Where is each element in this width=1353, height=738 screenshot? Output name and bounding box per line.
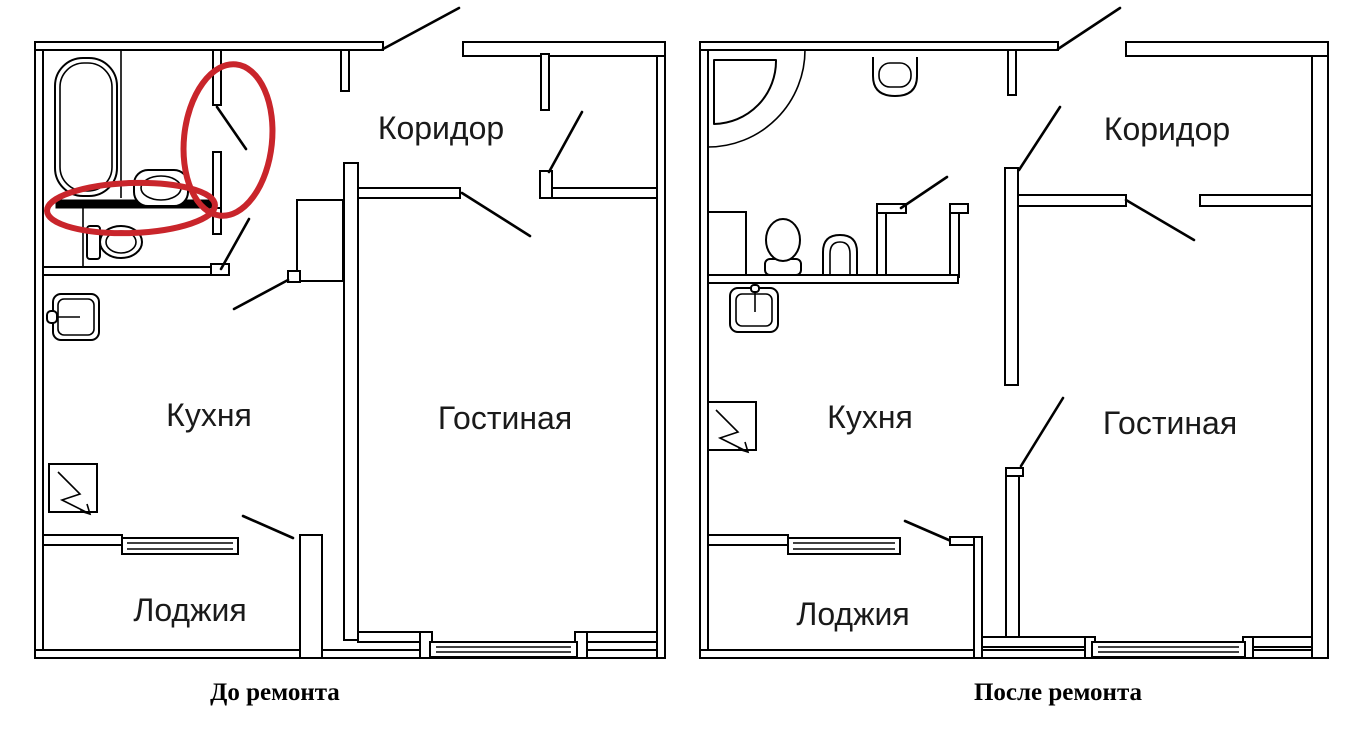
central-wall [1005, 168, 1018, 385]
bathroom-door-swing [901, 177, 947, 208]
balcony-door-swing [243, 516, 293, 538]
wall [35, 42, 383, 50]
living-room-top-wall [540, 171, 552, 198]
wc-bottom-wall [43, 267, 211, 275]
wc-door-swing [221, 219, 249, 269]
kitchen-sink-icon [47, 294, 99, 340]
kitchen-door-swing [234, 280, 288, 309]
corridor-door-swing [549, 112, 582, 172]
caption-after: После ремонта [974, 679, 1143, 706]
central-wall-notch [1006, 468, 1023, 476]
duct-niche [708, 212, 746, 277]
room-label-kitchen: Кухня [166, 397, 252, 433]
wall-stub [1008, 50, 1016, 95]
living-kitchen-door-swing [1021, 398, 1063, 466]
living-room-wall [344, 163, 358, 640]
caption-before: До ремонта [210, 679, 340, 706]
bathroom-bottom-wall [708, 275, 958, 283]
room-label-living: Гостиная [438, 400, 572, 436]
wall [700, 42, 1058, 50]
living-room-top-wall [358, 188, 460, 198]
passage-wall [950, 204, 968, 213]
floorplan-comparison: Коридор Кухня Гостиная Лоджия [0, 0, 1353, 738]
wall [35, 42, 43, 658]
bidet-icon [823, 235, 857, 275]
vent-shaft-box [297, 200, 343, 281]
wall [700, 42, 708, 658]
kitchen-sink-icon [730, 285, 778, 332]
electric-stove-icon [49, 464, 97, 514]
corner-shower-icon [708, 50, 805, 147]
electric-stove-icon [708, 402, 756, 452]
kitchen-bottom-wall [708, 535, 788, 545]
living-room-door-swing [1126, 200, 1194, 240]
kitchen-window [122, 538, 238, 554]
entrance-door-swing [383, 8, 459, 49]
bathroom-door-highlight [176, 60, 279, 220]
bathroom-partition [56, 200, 214, 208]
central-wall [1006, 468, 1019, 637]
wall [463, 42, 665, 56]
kitchen-bottom-wall [43, 535, 122, 545]
bathroom-door-swing [217, 107, 246, 149]
kitchen-window [788, 538, 900, 554]
living-room-bottom-wall [1245, 637, 1312, 647]
toilet-icon [765, 219, 801, 275]
loggia-wall [300, 535, 322, 658]
room-label-living: Гостиная [1103, 405, 1237, 441]
entrance-door-swing [1058, 8, 1120, 49]
wall [1312, 42, 1328, 658]
living-room-window [430, 642, 577, 657]
bathroom-wall [213, 50, 221, 105]
living-room-bottom-wall [577, 632, 657, 642]
plan-before: Коридор Кухня Гостиная Лоджия [35, 8, 665, 658]
wall-sink-icon [873, 57, 917, 96]
living-room-bottom-wall [358, 632, 428, 642]
living-room-bottom-wall [982, 637, 1092, 647]
room-label-kitchen: Кухня [827, 399, 913, 435]
room-label-loggia: Лоджия [796, 596, 909, 632]
wall [1126, 42, 1328, 56]
living-room-door-swing [462, 193, 530, 236]
wall-stub [341, 50, 349, 91]
bathroom-partition [877, 213, 886, 277]
room-label-corridor: Коридор [1104, 111, 1230, 147]
wall [657, 42, 665, 658]
living-room-window [1092, 642, 1245, 657]
corridor-bottom-wall [1018, 195, 1126, 206]
corridor-door-swing [1019, 107, 1060, 170]
passage-wall [950, 213, 959, 277]
room-label-corridor: Коридор [378, 110, 504, 146]
door-hinge-block [288, 271, 300, 282]
floorplans-svg: Коридор Кухня Гостиная Лоджия [0, 0, 1353, 738]
loggia-wall [974, 537, 982, 658]
plan-after: Коридор Кухня Гостиная Лоджия [700, 8, 1328, 658]
corridor-bottom-wall [1200, 195, 1312, 206]
living-room-top-wall [552, 188, 657, 198]
bathtub-icon [55, 58, 117, 196]
wall-stub [541, 54, 549, 110]
room-label-loggia: Лоджия [133, 592, 246, 628]
